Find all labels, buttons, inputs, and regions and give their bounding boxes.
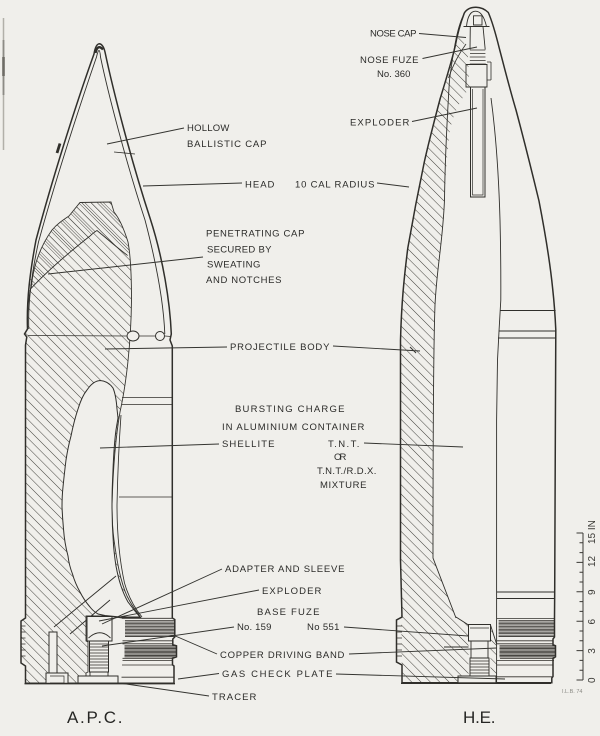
svg-text:IN ALUMINIUM CONTAINER: IN ALUMINIUM CONTAINER	[222, 422, 365, 433]
svg-text:MIXTURE: MIXTURE	[320, 480, 367, 491]
svg-text:BALLISTIC CAP: BALLISTIC CAP	[187, 139, 267, 150]
svg-text:PENETRATING CAP: PENETRATING CAP	[206, 229, 305, 240]
svg-text:No 551: No 551	[307, 622, 340, 633]
svg-text:H.E.: H.E.	[463, 708, 497, 727]
svg-text:PROJECTILE BODY: PROJECTILE BODY	[230, 342, 330, 353]
svg-text:HEAD: HEAD	[245, 180, 275, 191]
svg-text:T.N.T./R.D.X.: T.N.T./R.D.X.	[317, 466, 377, 477]
svg-text:BURSTING CHARGE: BURSTING CHARGE	[235, 404, 345, 415]
svg-text:T.N.T.: T.N.T.	[328, 439, 360, 450]
svg-text:EXPLODER: EXPLODER	[350, 118, 410, 129]
svg-text:15 IN: 15 IN	[587, 520, 598, 544]
svg-text:COPPER DRIVING BAND: COPPER DRIVING BAND	[220, 650, 345, 661]
svg-text:3: 3	[587, 648, 598, 654]
svg-text:EXPLODER: EXPLODER	[262, 586, 322, 597]
svg-text:GAS CHECK PLATE: GAS CHECK PLATE	[222, 669, 333, 680]
svg-text:No. 159: No. 159	[237, 622, 272, 633]
svg-text:BASE FUZE: BASE FUZE	[257, 607, 320, 618]
svg-text:6: 6	[587, 619, 598, 625]
svg-text:HOLLOW: HOLLOW	[187, 123, 230, 134]
svg-text:A.P.C.: A.P.C.	[67, 708, 124, 727]
svg-text:SWEATING: SWEATING	[207, 260, 261, 271]
svg-text:SHELLITE: SHELLITE	[222, 439, 275, 450]
svg-text:AND NOTCHES: AND NOTCHES	[206, 275, 282, 286]
svg-text:ADAPTER AND SLEEVE: ADAPTER AND SLEEVE	[225, 564, 345, 575]
svg-text:12: 12	[587, 555, 598, 567]
svg-text:0: 0	[587, 677, 598, 683]
svg-text:TRACER: TRACER	[212, 692, 257, 703]
svg-text:NOSE CAP: NOSE CAP	[370, 29, 417, 40]
svg-text:NOSE FUZE: NOSE FUZE	[360, 55, 419, 66]
svg-text:SECURED BY: SECURED BY	[207, 245, 272, 256]
svg-text:I.L.B. 74: I.L.B. 74	[562, 689, 583, 695]
svg-text:9: 9	[587, 589, 598, 595]
svg-text:OR: OR	[334, 452, 347, 463]
svg-text:10 CAL RADIUS: 10 CAL RADIUS	[295, 180, 375, 191]
svg-text:No. 360: No. 360	[377, 69, 411, 80]
